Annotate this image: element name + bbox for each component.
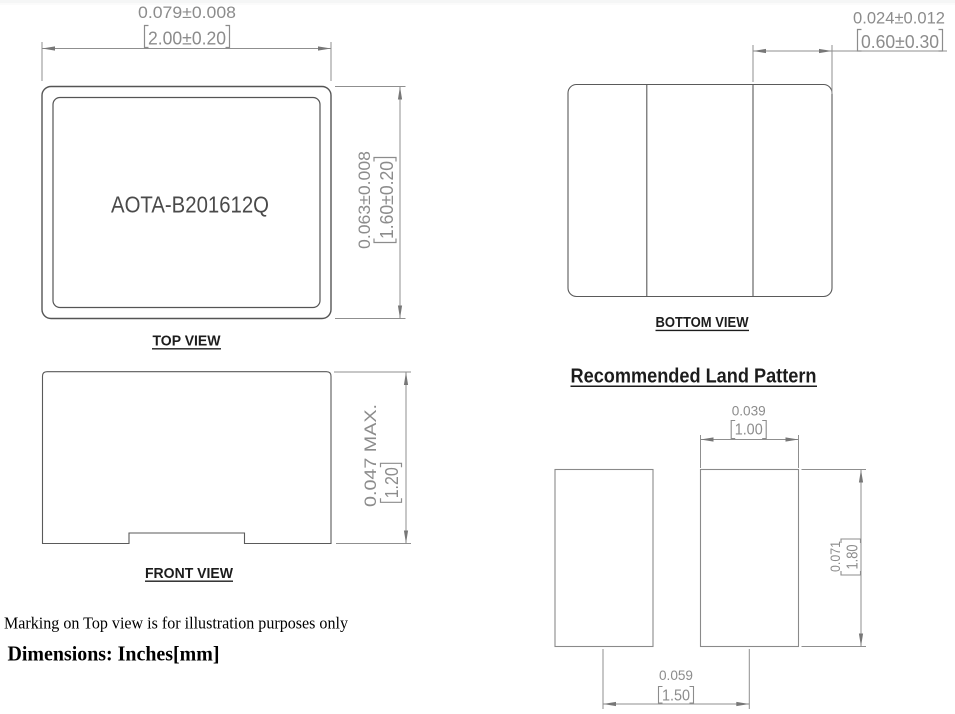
- svg-text:1.50: 1.50: [662, 688, 690, 705]
- svg-text:1.80: 1.80: [845, 544, 862, 569]
- svg-text:FRONT VIEW: FRONT VIEW: [145, 566, 233, 582]
- svg-text:1.60±0.20: 1.60±0.20: [377, 161, 397, 239]
- svg-text:0.024±0.012: 0.024±0.012: [853, 9, 945, 27]
- svg-text:0.071: 0.071: [827, 541, 843, 572]
- svg-text:0.059: 0.059: [659, 667, 693, 683]
- svg-text:Recommended Land Pattern: Recommended Land Pattern: [571, 364, 817, 387]
- svg-text:1.00: 1.00: [735, 422, 763, 439]
- svg-text:0.039: 0.039: [732, 403, 766, 419]
- svg-text:TOP VIEW: TOP VIEW: [153, 333, 221, 349]
- svg-text:0.60±0.30: 0.60±0.30: [861, 32, 939, 52]
- svg-text:2.00±0.20: 2.00±0.20: [148, 28, 226, 48]
- svg-text:0.047 MAX.: 0.047 MAX.: [362, 404, 380, 507]
- svg-text:AOTA-B201612Q: AOTA-B201612Q: [111, 191, 269, 217]
- svg-text:Dimensions: Inches[mm]: Dimensions: Inches[mm]: [8, 642, 220, 666]
- svg-text:BOTTOM VIEW: BOTTOM VIEW: [656, 315, 749, 331]
- svg-text:0.063±0.008: 0.063±0.008: [356, 151, 374, 249]
- svg-text:Marking on Top view is for ill: Marking on Top view is for illustration …: [4, 614, 348, 633]
- svg-text:1.20: 1.20: [382, 467, 402, 498]
- svg-text:0.079±0.008: 0.079±0.008: [138, 4, 236, 22]
